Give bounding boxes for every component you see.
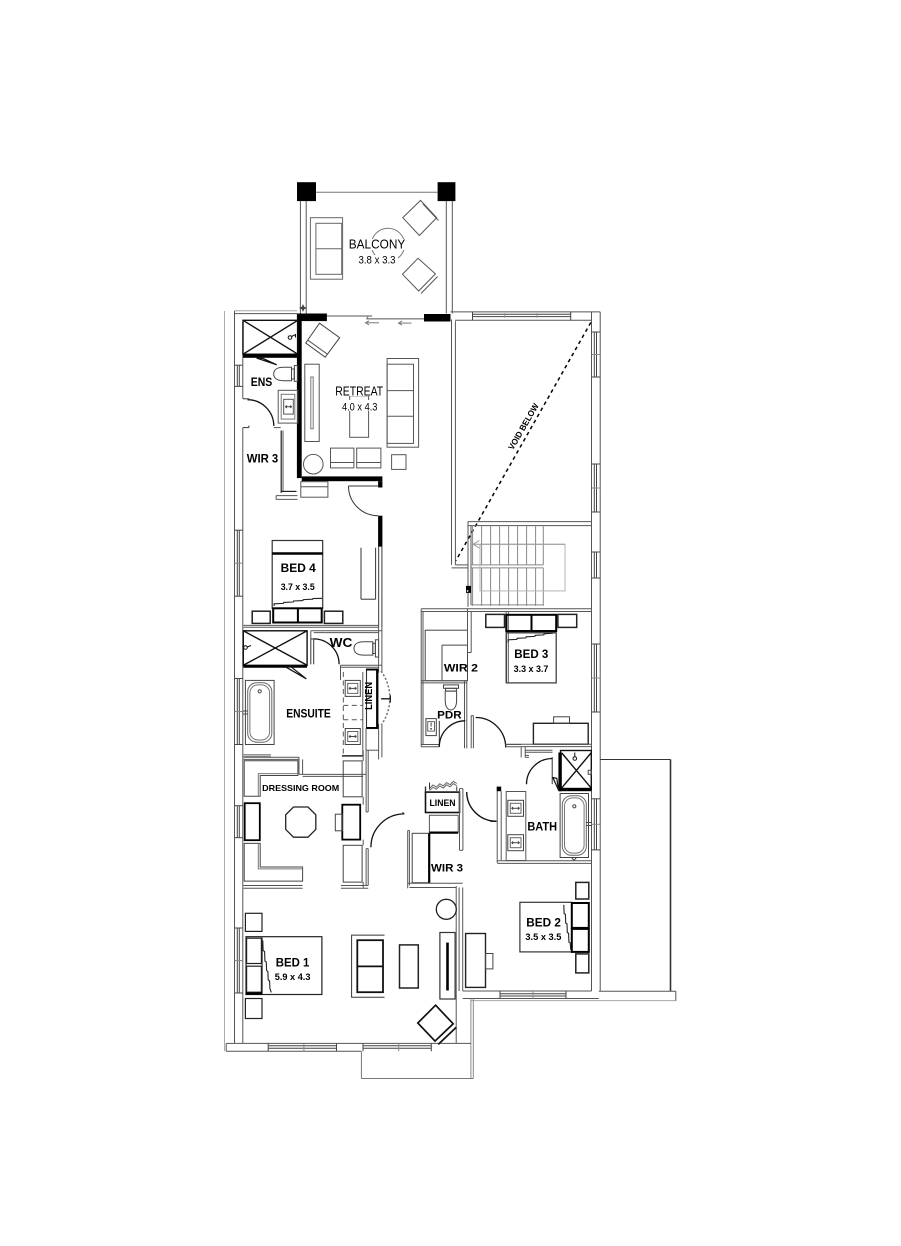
svg-text:BED 1: BED 1 <box>276 957 310 969</box>
svg-text:BED 3: BED 3 <box>514 649 548 661</box>
svg-text:3.8 x 3.3: 3.8 x 3.3 <box>359 254 396 266</box>
svg-text:DRESSING ROOM: DRESSING ROOM <box>262 783 339 793</box>
svg-text:4.0 x 4.3: 4.0 x 4.3 <box>342 402 378 414</box>
svg-text:WIR 3: WIR 3 <box>431 862 463 874</box>
svg-text:LINEN: LINEN <box>364 682 375 710</box>
svg-text:LINEN: LINEN <box>430 798 456 808</box>
svg-text:WIR 2: WIR 2 <box>444 663 478 675</box>
svg-text:ENS: ENS <box>251 375 273 389</box>
svg-text:BED 2: BED 2 <box>526 918 561 930</box>
svg-text:3.7 x 3.5: 3.7 x 3.5 <box>281 581 315 592</box>
svg-text:BATH: BATH <box>527 819 557 833</box>
svg-text:3.5 x 3.5: 3.5 x 3.5 <box>525 931 561 942</box>
svg-text:PDR: PDR <box>437 709 462 721</box>
svg-text:3.3 x 3.7: 3.3 x 3.7 <box>514 663 549 674</box>
svg-text:ENSUITE: ENSUITE <box>286 707 331 720</box>
svg-text:WIR 3: WIR 3 <box>247 452 279 466</box>
svg-text:RETREAT: RETREAT <box>335 384 383 398</box>
svg-text:BED 4: BED 4 <box>281 563 317 575</box>
svg-text:5.9 x 4.3: 5.9 x 4.3 <box>275 971 311 982</box>
svg-text:BALCONY: BALCONY <box>349 238 406 252</box>
